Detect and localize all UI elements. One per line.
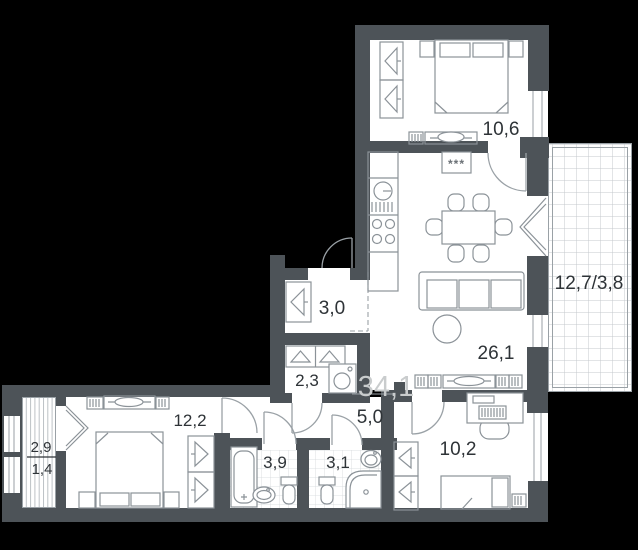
wall [56,397,66,406]
wall [297,450,309,508]
wall [2,508,548,522]
opening-bedroom-right [412,390,442,402]
label-bedroom-left: 12,2 [173,411,206,430]
opening-toilet [330,438,362,450]
label-loggia-left-top: 2,9 [31,439,52,456]
vent-shaft-icon: *** [442,152,471,173]
sink-icon [361,451,381,468]
wall [2,385,22,522]
label-bedroom-top: 10,6 [483,119,520,140]
wall [350,268,370,280]
wall [527,158,548,196]
label-wardrobe-room: 2,3 [295,371,319,390]
loggia-right-grid [548,143,632,392]
toilet-icon [319,477,335,504]
wall [355,141,488,153]
toilet-icon [281,477,297,504]
window-bedroom-right [528,413,548,481]
window-bedroom-top [528,91,548,137]
window-loggia-left-2 [4,457,20,493]
opening-wardrobe-room [292,393,322,403]
label-loggia-left-bottom: 1,4 [32,461,53,478]
sink-icon [253,487,275,503]
window-living [528,315,548,347]
wall [270,333,370,345]
wall [527,256,548,315]
wall [270,268,308,280]
wall [355,25,549,40]
label-loggia-right: 12,7/3,8 [555,273,624,294]
label-bathroom: 3,9 [263,453,287,472]
washing-machine-icon [329,364,356,393]
label-toilet-room: 3,1 [326,453,350,472]
label-kitchen-living: 26,1 [478,343,515,364]
label-bedroom-right: 10,2 [440,439,477,460]
floor-plan-svg: *** [0,0,638,550]
floor-plan-canvas: *** [0,0,638,550]
window-loggia-left-1 [4,416,20,452]
vent-symbol: *** [448,157,465,171]
label-closet: 3,0 [319,298,345,319]
wall [527,347,548,413]
opening-bathroom [262,438,296,450]
wall [56,451,66,508]
label-hallway: 5,0 [357,407,383,428]
label-total-area: 34,1 [358,371,414,403]
opening-entrance [308,268,350,280]
wall [2,385,285,397]
wall [296,438,330,450]
shower-icon [346,471,381,508]
wall [520,137,549,158]
wall [528,25,549,91]
